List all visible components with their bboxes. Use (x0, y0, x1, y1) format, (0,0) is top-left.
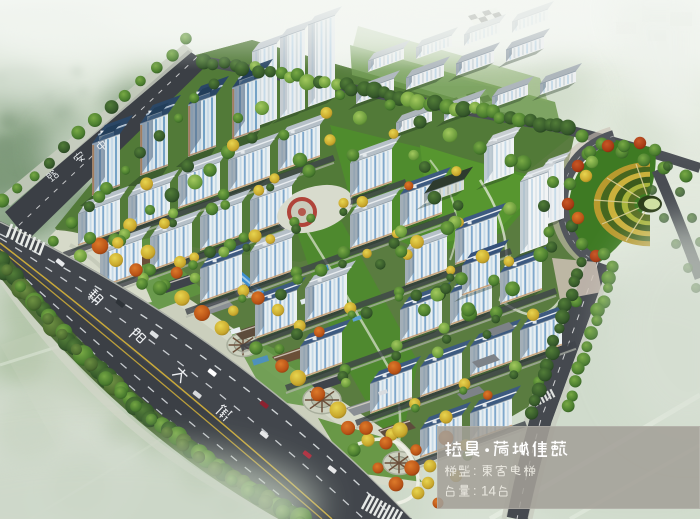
svg-text::: : (473, 464, 476, 478)
svg-text::: : (473, 484, 476, 498)
svg-text:14: 14 (481, 484, 497, 499)
